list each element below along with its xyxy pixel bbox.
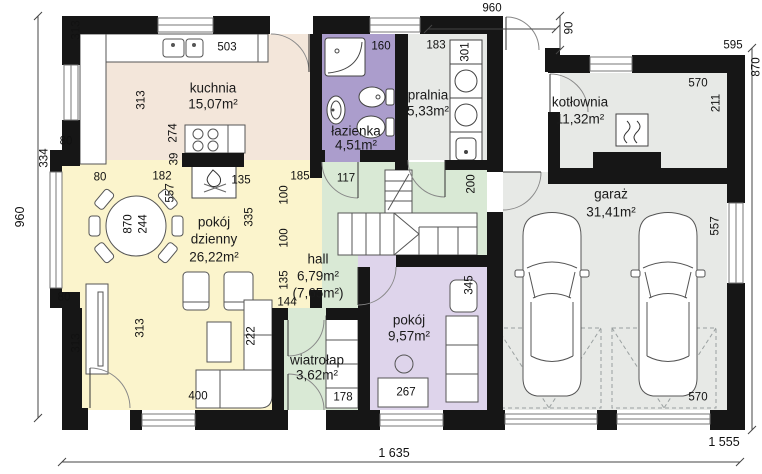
room-area-kuchnia: 15,07m²	[188, 97, 238, 111]
room-name-garaz: garaż	[594, 187, 628, 201]
dim-fireplace: 135	[231, 175, 250, 187]
coffee-table	[207, 322, 231, 362]
dim-wardrobe: 178	[333, 392, 352, 404]
dim-desk: 267	[396, 387, 415, 399]
dim-right-width: 1 555	[708, 436, 739, 449]
dim-overall-height: 960	[14, 207, 27, 228]
dim-table-2: 244	[138, 214, 150, 233]
tv-cabinet	[86, 284, 108, 374]
dim-kuchnia-2: 274	[168, 123, 180, 142]
dim-hall-top: 185	[290, 171, 309, 183]
dim-left-5: 313	[71, 333, 83, 352]
dim-lr-3: 557	[165, 183, 177, 202]
shower-icon	[325, 38, 365, 76]
dim-kuchnia-3: 39	[169, 153, 181, 166]
dim-porch: 90	[564, 22, 576, 35]
room-area-kotlownia: 11,32m²	[556, 112, 605, 126]
fireplace-icon	[192, 166, 236, 198]
car-top-view-icon	[515, 213, 705, 397]
boiler-icon	[616, 114, 648, 146]
room-name-pokoj-dzienny-2: dzienny	[191, 232, 238, 246]
plan-linework	[0, 0, 762, 474]
dim-overall-width: 1 635	[378, 447, 409, 460]
dim-kuchnia-1: 313	[136, 90, 148, 109]
armchairs	[183, 272, 253, 310]
room-name-lazienka: łazienka	[331, 124, 381, 138]
dim-hall-3: 135	[279, 270, 291, 289]
dim-tv: 313	[135, 318, 147, 337]
dim-bath-door: 117	[337, 173, 355, 185]
dim-kotlownia-2: 211	[711, 94, 723, 112]
dim-bed: 345	[464, 275, 476, 294]
dim-lr-4: 335	[244, 207, 256, 226]
bidet-icon	[359, 87, 394, 107]
room-area-pokoj-dzienny: 26,22m²	[189, 250, 239, 264]
stairs	[338, 170, 477, 255]
room-name-pokoj: pokój	[393, 313, 425, 327]
dim-garage-door: 200	[466, 174, 478, 193]
room-area-alt-hall: (7,65m²)	[292, 286, 343, 300]
room-area-pralnia: 5,33m²	[407, 104, 449, 118]
dim-left-3: 80	[60, 136, 73, 148]
room-name-pokoj-dzienny-1: pokój	[198, 215, 230, 229]
dim-pralnia-2: 301	[460, 42, 472, 61]
room-name-kuchnia: kuchnia	[190, 81, 237, 95]
dim-left-4: 80	[58, 292, 71, 304]
dim-sofa: 222	[246, 326, 258, 345]
dim-garaz-2: 570	[688, 392, 707, 404]
desk-chair	[395, 355, 413, 373]
room-area-pokoj: 9,57m²	[388, 329, 430, 343]
dim-pralnia-1: 183	[426, 40, 445, 52]
room-area-lazienka: 4,51m²	[335, 138, 377, 152]
dim-hall-4: 144	[277, 297, 296, 309]
dim-hall-2: 100	[279, 228, 291, 247]
room-name-pralnia: pralnia	[408, 88, 449, 102]
dim-lr-5: 400	[188, 391, 207, 403]
dim-lazienka: 160	[371, 41, 390, 53]
dim-top-right: 595	[723, 40, 742, 52]
cooktop-icon	[185, 125, 245, 153]
dim-lr-1: 80	[94, 172, 107, 184]
bed	[446, 280, 478, 402]
dim-table-1: 870	[123, 214, 135, 233]
room-area-hall: 6,79m²	[297, 269, 339, 283]
floor-plan: 960 1 635 1 555 960 90 595 870 313 334 8…	[0, 0, 762, 474]
dim-top-entry: 960	[482, 3, 501, 15]
dim-left-1: 313	[71, 20, 83, 39]
dim-right-height: 870	[751, 57, 762, 76]
dim-hall-1: 100	[279, 185, 291, 204]
washbasin-icon	[327, 96, 345, 124]
dim-kotlownia-1: 570	[688, 78, 707, 90]
dim-counter: 503	[217, 42, 236, 54]
room-area-wiatrolap: 3,62m²	[296, 368, 338, 382]
room-name-hall: hall	[307, 252, 328, 266]
dim-left-2: 334	[39, 148, 51, 167]
dim-garaz-1: 557	[710, 216, 722, 235]
room-name-kotlownia: kotłownia	[552, 95, 608, 109]
room-area-garaz: 31,41m²	[586, 205, 636, 219]
sink-icon	[163, 39, 203, 57]
dim-lr-2: 182	[152, 171, 171, 183]
room-name-wiatrolap: wiatrołap	[290, 353, 344, 367]
